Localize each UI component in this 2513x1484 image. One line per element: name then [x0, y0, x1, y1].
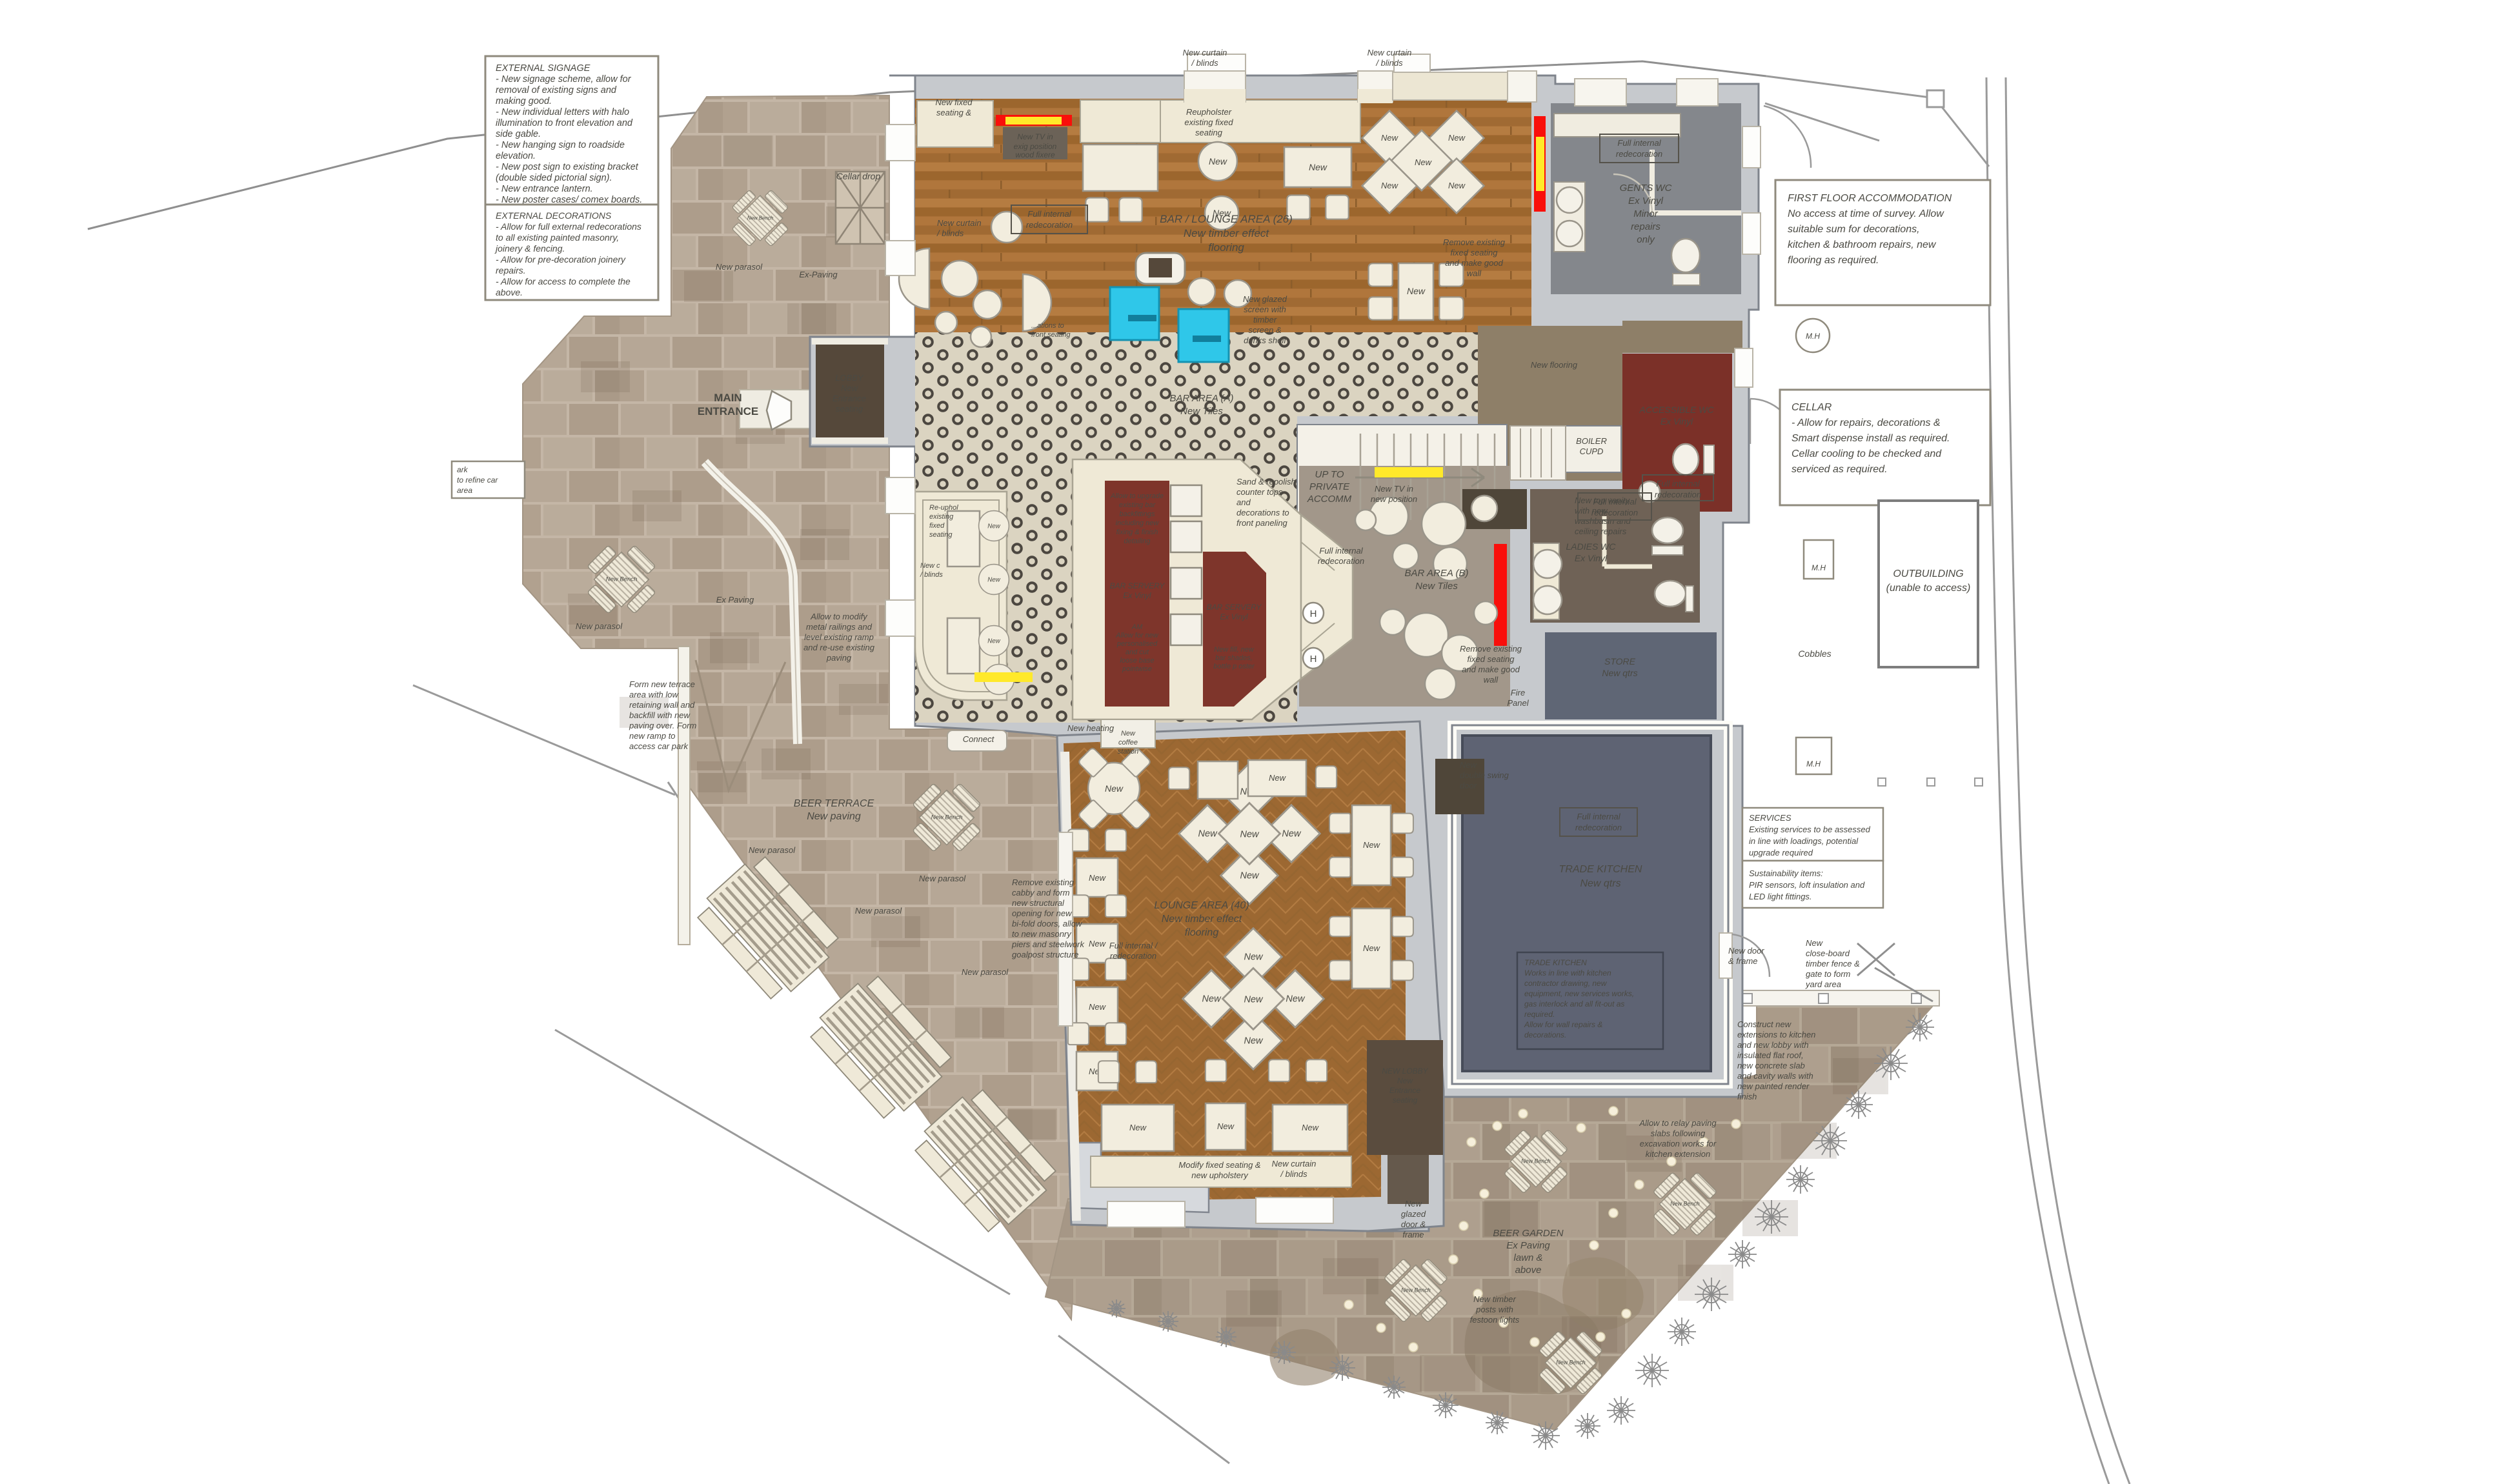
svg-text:OUTBUILDING: OUTBUILDING: [1893, 568, 1963, 579]
svg-text:Allow for new: Allow for new: [1115, 632, 1158, 639]
svg-text:UP TO: UP TO: [1315, 469, 1344, 480]
svg-text:BAR AREA (B): BAR AREA (B): [1405, 568, 1469, 579]
svg-text:washbasin and: washbasin and: [1575, 516, 1631, 526]
svg-text:double swing: double swing: [1460, 770, 1509, 780]
svg-text:New: New: [1244, 995, 1264, 1005]
svg-text:New paving: New paving: [807, 811, 861, 822]
svg-text:finish: finish: [1737, 1092, 1757, 1101]
svg-text:including new: including new: [1116, 519, 1160, 527]
svg-text:posts with: posts with: [1475, 1305, 1513, 1314]
svg-text:Ex Paving: Ex Paving: [716, 595, 754, 605]
svg-text:redecoration: redecoration: [1655, 490, 1701, 499]
svg-text:New TV in: New TV in: [1375, 484, 1413, 494]
svg-text:to all existing painted masonr: to all existing painted masonry,: [496, 232, 619, 243]
svg-text:frame: frame: [1402, 1230, 1424, 1239]
svg-text:BEER TERRACE: BEER TERRACE: [794, 798, 874, 809]
svg-text:opening for new: opening for new: [1012, 908, 1073, 918]
svg-text:ENTRANCE: ENTRANCE: [698, 405, 758, 417]
svg-text:Works in line with kitchen: Works in line with kitchen: [1524, 968, 1611, 978]
svg-text:bi-fold doors, allow: bi-fold doors, allow: [1012, 919, 1083, 928]
svg-text:New: New: [1198, 828, 1218, 839]
svg-text:New curtain: New curtain: [1272, 1159, 1317, 1168]
svg-text:slabs following: slabs following: [1651, 1128, 1706, 1138]
svg-text:- New entrance lantern.: - New entrance lantern.: [496, 184, 593, 194]
svg-text:extensions to kitchen: extensions to kitchen: [1737, 1030, 1815, 1039]
svg-text:loose base: loose base: [1120, 657, 1154, 665]
svg-text:seating: seating: [929, 531, 953, 539]
svg-text:flooring: flooring: [1185, 927, 1219, 938]
svg-text:and cut: and cut: [1125, 648, 1149, 656]
svg-text:insulated flat roof,: insulated flat roof,: [1737, 1050, 1804, 1060]
svg-text:Form new terrace: Form new terrace: [629, 679, 695, 689]
svg-text:GENTS WC: GENTS WC: [1620, 183, 1672, 194]
svg-text:New timber effect: New timber effect: [1184, 227, 1270, 239]
svg-text:existing bar: existing bar: [1119, 501, 1156, 509]
svg-text:New: New: [1309, 162, 1327, 172]
svg-text:No access at time of survey. A: No access at time of survey. Allow: [1788, 208, 1944, 219]
svg-text:New glazed: New glazed: [1243, 294, 1287, 304]
svg-text:paving over. Form: paving over. Form: [629, 721, 696, 730]
svg-text:Modify fixed seating &: Modify fixed seating &: [1178, 1160, 1260, 1170]
svg-text:gate to form: gate to form: [1806, 969, 1851, 979]
svg-text:timber: timber: [1253, 315, 1277, 325]
svg-text:wall: wall: [1484, 675, 1499, 685]
svg-text:BEER GARDEN: BEER GARDEN: [1493, 1228, 1563, 1239]
svg-text:and: and: [1236, 497, 1251, 507]
svg-text:pointwise: pointwise: [1122, 665, 1152, 673]
svg-text:access car park: access car park: [629, 741, 689, 751]
svg-text:New: New: [1089, 939, 1107, 948]
svg-text:Ex Vinyl: Ex Vinyl: [1660, 416, 1693, 426]
svg-text:New qtrs: New qtrs: [1580, 878, 1620, 889]
svg-text:close-board: close-board: [1806, 948, 1850, 958]
svg-text:New: New: [1405, 1199, 1423, 1208]
svg-text:New: New: [1269, 773, 1287, 783]
svg-text:Cobbles: Cobbles: [1798, 648, 1831, 659]
svg-text:above: above: [1515, 1265, 1542, 1276]
svg-text:New parasol: New parasol: [716, 262, 763, 272]
svg-text:Full internal /: Full internal /: [1109, 941, 1158, 950]
svg-text:Connect: Connect: [963, 734, 995, 744]
svg-text:New timber: New timber: [1473, 1294, 1516, 1304]
svg-text:station: station: [1118, 748, 1138, 756]
svg-text:New: New: [1460, 760, 1478, 770]
svg-text:Ex Vinyl: Ex Vinyl: [1575, 553, 1608, 563]
svg-text:Entrance: Entrance: [833, 394, 866, 403]
svg-text:New heating: New heating: [1067, 723, 1115, 733]
svg-text:LOBBY: LOBBY: [835, 373, 864, 383]
svg-text:New: New: [1302, 1123, 1320, 1132]
svg-text:redecoration: redecoration: [1616, 149, 1662, 159]
svg-text:personalised: personalised: [1116, 640, 1158, 648]
svg-text:- Allow for full external rede: - Allow for full external redecorations: [496, 221, 641, 232]
svg-text:new position: new position: [1371, 494, 1417, 504]
svg-text:- Allow for repairs, decoratio: - Allow for repairs, decorations &: [1791, 417, 1941, 428]
svg-text:redecoration: redecoration: [1591, 508, 1638, 517]
svg-text:door: door: [1460, 781, 1477, 790]
svg-text:Ex-Paving: Ex-Paving: [799, 270, 838, 279]
svg-text:Ex Vinyl: Ex Vinyl: [1123, 591, 1151, 600]
svg-text:New: New: [1089, 1002, 1107, 1012]
svg-text:Allow for wall repairs &: Allow for wall repairs &: [1524, 1020, 1602, 1029]
svg-text:new painted render: new painted render: [1737, 1081, 1810, 1091]
svg-text:New parasol: New parasol: [576, 621, 623, 631]
svg-text:fixed: fixed: [929, 522, 945, 530]
svg-text:Re-uphol: Re-uphol: [929, 504, 958, 512]
svg-text:flooring as required.: flooring as required.: [1788, 255, 1879, 266]
svg-text:New: New: [1240, 870, 1260, 881]
svg-text:Remove existing: Remove existing: [1443, 237, 1506, 247]
svg-text:existing: existing: [929, 513, 954, 521]
svg-text:Allow to modify: Allow to modify: [810, 612, 868, 621]
svg-text:new upholstery: new upholstery: [1191, 1170, 1249, 1180]
svg-text:New flooring: New flooring: [1531, 360, 1578, 370]
svg-text:Cellar cooling to be checked a: Cellar cooling to be checked and: [1791, 448, 1942, 459]
svg-text:BAR / LOUNGE AREA (26): BAR / LOUNGE AREA (26): [1160, 213, 1293, 225]
svg-text:and cavity walls with: and cavity walls with: [1737, 1071, 1813, 1081]
svg-text:Cellar drop: Cellar drop: [836, 171, 881, 181]
svg-text:to refine car: to refine car: [457, 476, 498, 485]
svg-text:Full internal: Full internal: [1319, 546, 1363, 556]
svg-text:metal railings and: metal railings and: [806, 622, 873, 632]
svg-text:BAR SERVERY: BAR SERVERY: [1207, 603, 1262, 612]
svg-text:TRADE KITCHEN: TRADE KITCHEN: [1559, 864, 1642, 875]
svg-text:New: New: [1381, 133, 1399, 143]
svg-text:Ex Paving: Ex Paving: [1506, 1240, 1550, 1251]
svg-text:new concrete slab: new concrete slab: [1737, 1061, 1805, 1070]
svg-text:New TV in: New TV in: [1017, 132, 1053, 141]
svg-text:glazed: glazed: [1401, 1209, 1426, 1219]
svg-text:seating: seating: [1393, 1096, 1418, 1105]
svg-text:in line with loadings, potenti: in line with loadings, potential: [1749, 836, 1859, 846]
svg-text:Construct new: Construct new: [1737, 1019, 1792, 1029]
svg-text:BAR AREA (A): BAR AREA (A): [1170, 393, 1234, 404]
svg-text:- New signage scheme, allow fo: - New signage scheme, allow for: [496, 74, 632, 85]
svg-text:repairs.: repairs.: [496, 265, 526, 276]
svg-text:H: H: [1310, 608, 1317, 619]
svg-text:/ blinds: / blinds: [920, 571, 943, 579]
svg-text:to new masonry: to new masonry: [1012, 929, 1072, 939]
svg-text:goalpost structure: goalpost structure: [1012, 950, 1078, 959]
svg-text:SERVICES: SERVICES: [1749, 813, 1791, 823]
svg-text:elevation.: elevation.: [496, 151, 536, 161]
svg-text:& frame: & frame: [1728, 956, 1758, 966]
svg-text:festoon lights: festoon lights: [1470, 1315, 1520, 1325]
svg-text:ACCESSIBLE WC: ACCESSIBLE WC: [1639, 405, 1714, 415]
svg-text:New: New: [1089, 873, 1107, 883]
svg-text:LOUNGE AREA (40): LOUNGE AREA (40): [1154, 900, 1249, 911]
svg-text:making good.: making good.: [496, 96, 552, 106]
svg-text:New: New: [1244, 952, 1264, 963]
svg-text:New: New: [1415, 157, 1433, 167]
svg-text:area: area: [457, 486, 472, 495]
svg-text:bottle p oster: bottle p oster: [1213, 663, 1255, 670]
svg-text:backfittings: backfittings: [1119, 510, 1155, 518]
svg-text:MAIN: MAIN: [714, 392, 742, 404]
svg-text:drinks shelf: drinks shelf: [1244, 336, 1287, 345]
svg-text:equipment, new services works,: equipment, new services works,: [1524, 989, 1634, 998]
svg-text:Ex Vinyl: Ex Vinyl: [1628, 196, 1664, 206]
svg-text:FIRST FLOOR ACCOMMODATION: FIRST FLOOR ACCOMMODATION: [1788, 193, 1952, 204]
svg-text:repairs: repairs: [1631, 221, 1660, 232]
svg-text:coffee: coffee: [1118, 739, 1138, 747]
svg-text:M.H: M.H: [1812, 563, 1826, 572]
svg-text:TRADE KITCHEN: TRADE KITCHEN: [1524, 958, 1587, 967]
svg-text:M.H: M.H: [1806, 759, 1821, 768]
svg-text:decorations.: decorations.: [1524, 1030, 1566, 1039]
svg-text:piers and steelwork: piers and steelwork: [1011, 939, 1085, 949]
svg-text:BAR SERVERY: BAR SERVERY: [1110, 581, 1166, 590]
svg-text:Minor: Minor: [1633, 208, 1659, 219]
svg-text:New: New: [1217, 1121, 1235, 1131]
svg-text:illumination to front elevatio: illumination to front elevation and: [496, 118, 633, 128]
svg-text:New fill, new: New fill, new: [1214, 646, 1255, 654]
svg-text:New: New: [1407, 286, 1426, 296]
svg-text:ACCOMM: ACCOMM: [1307, 494, 1352, 505]
svg-text:New: New: [1397, 1076, 1413, 1085]
svg-text:seating: seating: [1195, 128, 1223, 137]
svg-text:New parasol: New parasol: [855, 906, 902, 916]
svg-text:New: New: [1240, 830, 1260, 840]
svg-text:Ex Vinyl: Ex Vinyl: [1220, 612, 1247, 621]
svg-text:EXTERNAL DECORATIONS: EXTERNAL DECORATIONS: [496, 210, 612, 221]
svg-text:New: New: [1244, 1036, 1264, 1046]
svg-text:redecoration: redecoration: [1026, 220, 1073, 230]
svg-text:ceiling repairs: ceiling repairs: [1575, 526, 1627, 536]
svg-text:paving: paving: [826, 653, 852, 663]
svg-text:cabby and form: cabby and form: [1012, 888, 1070, 897]
svg-text:and make good: and make good: [1462, 665, 1520, 674]
svg-text:bar shades,: bar shades,: [1215, 654, 1252, 662]
svg-text:Allow to upgrade: Allow to upgrade: [1110, 492, 1164, 500]
svg-text:M.H: M.H: [1806, 332, 1820, 341]
svg-text:gas interlock and all fit-out: gas interlock and all fit-out as: [1524, 999, 1624, 1008]
svg-text:New: New: [1363, 943, 1381, 953]
svg-text:- New hanging sign to roadside: - New hanging sign to roadside: [496, 140, 625, 150]
svg-text:- Allow for pre-decoration joi: - Allow for pre-decoration joinery: [496, 254, 626, 265]
svg-text:contractor drawing, new: contractor drawing, new: [1524, 979, 1608, 988]
svg-text:lawn &: lawn &: [1513, 1252, 1542, 1263]
svg-text:kitchen extension: kitchen extension: [1646, 1149, 1710, 1159]
svg-text:New: New: [1105, 783, 1124, 794]
svg-text:kitchen & bathroom repairs, ne: kitchen & bathroom repairs, new: [1788, 239, 1937, 250]
svg-text:side gable.: side gable.: [496, 129, 541, 139]
svg-text:required.: required.: [1524, 1010, 1555, 1019]
svg-text:Entrance: Entrance: [1389, 1086, 1420, 1095]
svg-text:Full internal: Full internal: [1027, 209, 1071, 219]
svg-text:front paneling: front paneling: [1236, 518, 1288, 528]
svg-text:CELLAR: CELLAR: [1791, 402, 1832, 413]
svg-text:upgrade required: upgrade required: [1749, 848, 1813, 857]
svg-text:/ blinds: / blinds: [1375, 58, 1403, 68]
svg-text:PRIVATE: PRIVATE: [1309, 481, 1350, 492]
svg-text:exig position: exig position: [1014, 142, 1057, 151]
svg-text:...ations to: ...ations to: [1031, 322, 1064, 330]
svg-text:timber fence &: timber fence &: [1806, 959, 1860, 968]
svg-text:/ blinds: / blinds: [1280, 1169, 1307, 1179]
svg-text:redecoration: redecoration: [1318, 556, 1364, 566]
svg-text:removal of existing signs and: removal of existing signs and: [496, 85, 617, 95]
svg-text:Full internal: Full internal: [1656, 479, 1700, 488]
svg-text:new ramp to: new ramp to: [629, 731, 676, 741]
svg-text:New: New: [1282, 828, 1302, 839]
svg-text:fixed seating: fixed seating: [1451, 248, 1499, 257]
svg-text:Full internal: Full internal: [1577, 812, 1620, 821]
svg-text:new structural: new structural: [1012, 898, 1065, 908]
svg-text:- Allow for access to complete: - Allow for access to complete the: [496, 276, 631, 286]
svg-text:front seating: front seating: [1031, 331, 1071, 339]
svg-text:Sand & repolish: Sand & repolish: [1236, 477, 1296, 486]
svg-text:wall: wall: [1467, 268, 1482, 278]
svg-text:seating &: seating &: [936, 108, 971, 117]
svg-text:BOILER: BOILER: [1576, 436, 1607, 446]
svg-text:and re-use existing: and re-use existing: [803, 643, 875, 652]
svg-text:New: New: [1286, 994, 1306, 1004]
svg-text:seating: seating: [836, 404, 863, 414]
svg-text:New qtrs: New qtrs: [1602, 668, 1637, 678]
svg-text:/ blinds: / blinds: [936, 228, 964, 238]
svg-text:counter tops: counter tops: [1236, 487, 1283, 497]
svg-text:New: New: [1806, 938, 1824, 948]
svg-text:joinery & fencing.: joinery & fencing.: [494, 243, 565, 254]
svg-text:New curtain: New curtain: [1183, 48, 1227, 57]
svg-text:Existing services to be assess: Existing services to be assessed: [1749, 825, 1871, 834]
svg-text:New door: New door: [1728, 946, 1764, 956]
svg-text:New: New: [1363, 840, 1381, 850]
svg-text:Smart dispense install as requ: Smart dispense install as required.: [1791, 433, 1950, 444]
svg-text:CUPD: CUPD: [1580, 446, 1604, 456]
svg-text:serviced as required.: serviced as required.: [1791, 464, 1888, 475]
svg-text:Remove existing: Remove existing: [1012, 877, 1075, 887]
svg-text:(double sided pictorial sign).: (double sided pictorial sign).: [496, 173, 612, 183]
svg-text:screen &: screen &: [1248, 325, 1281, 335]
svg-text:New: New: [1121, 730, 1136, 737]
svg-text:New: New: [1209, 156, 1227, 166]
svg-text:Fire: Fire: [1511, 688, 1525, 697]
svg-text:fixed seating: fixed seating: [1468, 654, 1515, 664]
svg-text:and make good: and make good: [1445, 258, 1503, 268]
svg-text:(unable to access): (unable to access): [1886, 583, 1971, 594]
svg-text:/ blinds: / blinds: [1191, 58, 1218, 68]
svg-text:New Tiles: New Tiles: [1180, 406, 1223, 417]
svg-text:backfill with new: backfill with new: [629, 710, 691, 720]
svg-text:STORE: STORE: [1604, 656, 1636, 667]
svg-text:detailing: detailing: [1124, 537, 1151, 545]
svg-text:New curtain: New curtain: [1368, 48, 1412, 57]
svg-text:decorations to: decorations to: [1236, 508, 1289, 517]
svg-text:and new lobby with: and new lobby with: [1737, 1040, 1809, 1050]
svg-text:level existing ramp: level existing ramp: [804, 632, 874, 642]
svg-text:Remove existing: Remove existing: [1460, 644, 1522, 654]
svg-text:flooring: flooring: [1208, 241, 1244, 254]
svg-text:New parasol: New parasol: [962, 967, 1009, 977]
svg-text:ark: ark: [457, 465, 469, 474]
svg-text:excavation works for: excavation works for: [1640, 1139, 1717, 1148]
svg-text:yard area: yard area: [1805, 979, 1841, 989]
svg-text:redecoration: redecoration: [1575, 823, 1622, 832]
svg-text:Sustainability items:: Sustainability items:: [1749, 868, 1823, 878]
svg-text:AM: AM: [1131, 623, 1143, 631]
svg-text:New parasol: New parasol: [919, 874, 966, 883]
svg-text:screen with: screen with: [1244, 305, 1286, 314]
svg-text:only: only: [1637, 234, 1655, 245]
svg-text:fixing & finish: fixing & finish: [1116, 528, 1158, 536]
svg-text:New fixed: New fixed: [935, 97, 973, 107]
svg-text:New: New: [1448, 181, 1466, 190]
svg-text:suitable sum for decorations,: suitable sum for decorations,: [1788, 224, 1920, 235]
svg-text:EXTERNAL SIGNAGE: EXTERNAL SIGNAGE: [496, 63, 590, 74]
svg-text:New timber effect: New timber effect: [1162, 914, 1242, 925]
svg-text:wood fixere: wood fixere: [1015, 150, 1055, 159]
svg-text:New: New: [1129, 1123, 1147, 1132]
svg-text:- New individual letters with: - New individual letters with halo: [496, 107, 629, 117]
svg-text:door &: door &: [1401, 1219, 1426, 1229]
svg-text:existing fixed: existing fixed: [1184, 117, 1233, 127]
svg-text:LADIES WC: LADIES WC: [1566, 541, 1616, 552]
svg-text:Full internal: Full internal: [1593, 497, 1637, 506]
svg-text:New c: New c: [920, 562, 940, 570]
svg-text:H: H: [1310, 654, 1317, 665]
svg-text:New: New: [841, 383, 859, 393]
svg-text:Full internal: Full internal: [1617, 138, 1661, 148]
svg-text:PIR sensors, loft insulation a: PIR sensors, loft insulation and: [1749, 880, 1865, 890]
svg-text:NEW LOBBY: NEW LOBBY: [1382, 1067, 1428, 1076]
svg-text:New parasol: New parasol: [749, 845, 796, 855]
svg-text:New: New: [1202, 994, 1222, 1004]
svg-text:Reupholster: Reupholster: [1186, 107, 1232, 117]
svg-text:redecoration: redecoration: [1110, 951, 1156, 961]
svg-text:area with low: area with low: [629, 690, 679, 699]
svg-text:retaining wall and: retaining wall and: [629, 700, 695, 710]
svg-text:- New post sign to existing br: - New post sign to existing bracket: [496, 162, 639, 172]
svg-text:New: New: [1448, 133, 1466, 143]
svg-text:New: New: [1381, 181, 1399, 190]
svg-text:LED light fittings.: LED light fittings.: [1749, 892, 1812, 901]
svg-text:Allow to relay paving: Allow to relay paving: [1639, 1118, 1717, 1128]
svg-text:New Tiles: New Tiles: [1415, 581, 1458, 592]
svg-text:above.: above.: [496, 287, 523, 297]
svg-text:New curtain: New curtain: [937, 218, 982, 228]
svg-text:Panel: Panel: [1507, 698, 1529, 708]
